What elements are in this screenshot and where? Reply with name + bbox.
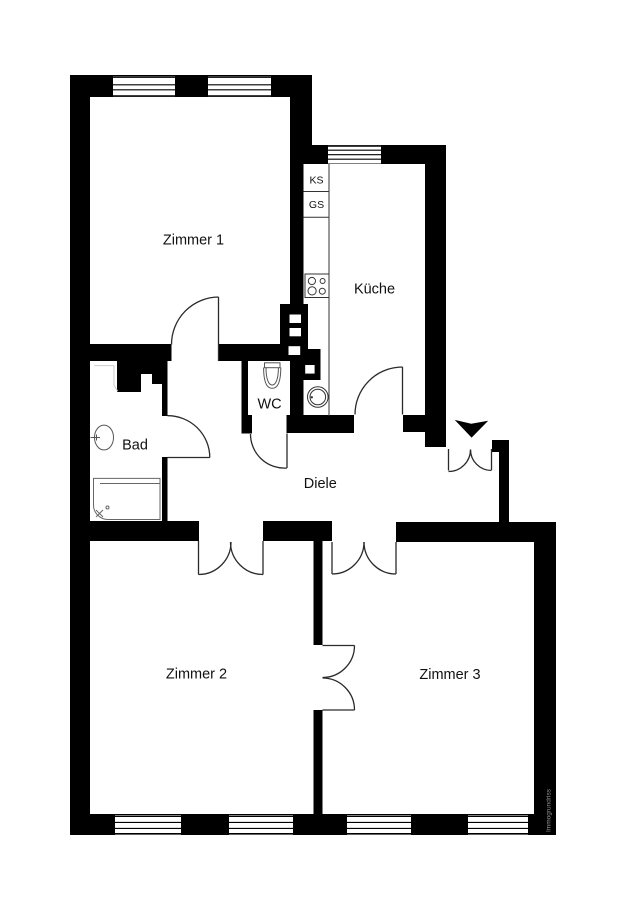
svg-text:Küche: Küche xyxy=(354,281,395,297)
svg-text:Immogrundriss: Immogrundriss xyxy=(546,788,553,832)
svg-text:Diele: Diele xyxy=(304,476,337,492)
svg-text:Zimmer 2: Zimmer 2 xyxy=(166,666,227,682)
svg-text:GS: GS xyxy=(309,199,324,211)
svg-text:Bad: Bad xyxy=(122,437,148,453)
svg-text:KS: KS xyxy=(309,175,323,187)
svg-text:WC: WC xyxy=(258,396,282,412)
svg-text:Zimmer 1: Zimmer 1 xyxy=(163,232,224,248)
svg-text:Zimmer 3: Zimmer 3 xyxy=(419,667,480,683)
